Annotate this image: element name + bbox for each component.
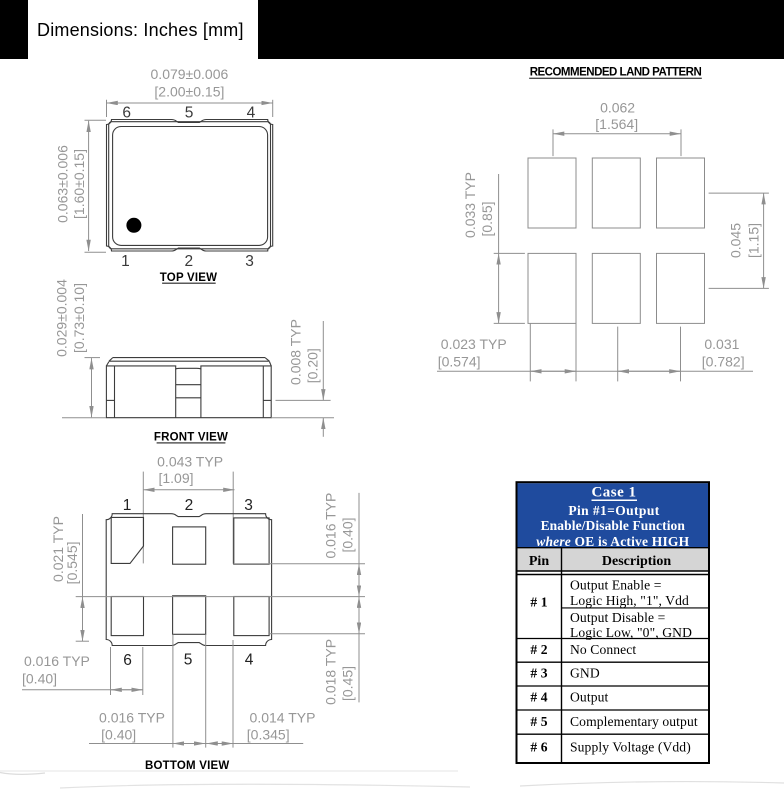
- svg-text:0.008 TYP: 0.008 TYP: [287, 319, 303, 385]
- svg-text:0.043 TYP: 0.043 TYP: [157, 454, 223, 470]
- svg-text:[0.73±0.10]: [0.73±0.10]: [71, 283, 87, 353]
- svg-text:Description: Description: [602, 554, 671, 569]
- svg-text:TOP VIEW: TOP VIEW: [160, 272, 217, 284]
- svg-text:# 1: # 1: [530, 595, 547, 610]
- svg-text:GND: GND: [570, 666, 600, 681]
- svg-text:[0.45]: [0.45]: [339, 666, 355, 701]
- svg-text:Complementary output: Complementary output: [570, 714, 698, 729]
- svg-text:0.016 TYP: 0.016 TYP: [24, 653, 90, 669]
- svg-text:[0.574]: [0.574]: [438, 354, 481, 370]
- svg-text:[0.545]: [0.545]: [64, 541, 80, 584]
- svg-text:# 6: # 6: [530, 740, 547, 755]
- svg-text:[1.564]: [1.564]: [595, 116, 638, 132]
- svg-text:2: 2: [185, 497, 194, 514]
- svg-text:Pin #1=Output: Pin #1=Output: [568, 503, 659, 518]
- svg-text:0.014 TYP: 0.014 TYP: [250, 710, 316, 726]
- svg-text:[0.20]: [0.20]: [304, 348, 320, 383]
- svg-text:3: 3: [244, 497, 253, 514]
- svg-text:Logic High, "1", Vdd: Logic High, "1", Vdd: [570, 593, 689, 608]
- svg-text:[0.85]: [0.85]: [479, 201, 495, 236]
- svg-text:0.016 TYP: 0.016 TYP: [99, 710, 165, 726]
- svg-text:# 3: # 3: [530, 666, 547, 681]
- svg-text:[2.00±0.15]: [2.00±0.15]: [154, 84, 224, 100]
- svg-text:0.079±0.006: 0.079±0.006: [151, 66, 229, 82]
- svg-text:[1.60±0.15]: [1.60±0.15]: [71, 149, 87, 219]
- svg-text:0.063±0.006: 0.063±0.006: [55, 145, 71, 223]
- svg-text:0.033 TYP: 0.033 TYP: [462, 172, 478, 238]
- svg-text:Output: Output: [570, 690, 608, 705]
- svg-text:5: 5: [185, 105, 194, 122]
- svg-text:FRONT VIEW: FRONT VIEW: [154, 432, 228, 444]
- svg-text:0.018 TYP: 0.018 TYP: [322, 639, 338, 705]
- svg-text:Logic Low, "0", GND: Logic Low, "0", GND: [570, 625, 692, 640]
- svg-text:# 2: # 2: [530, 642, 547, 657]
- svg-text:[0.782]: [0.782]: [702, 354, 745, 370]
- svg-text:4: 4: [245, 652, 254, 669]
- svg-text:where OE is Active HIGH: where OE is Active HIGH: [536, 534, 689, 549]
- svg-text:1: 1: [121, 253, 130, 270]
- svg-text:0.029±0.004: 0.029±0.004: [53, 279, 69, 357]
- svg-text:Supply Voltage (Vdd): Supply Voltage (Vdd): [570, 740, 691, 756]
- svg-text:[1.15]: [1.15]: [746, 223, 762, 258]
- svg-text:0.016 TYP: 0.016 TYP: [322, 493, 338, 559]
- svg-text:RECOMMENDED LAND PATTERN: RECOMMENDED LAND PATTERN: [530, 67, 702, 79]
- svg-text:2: 2: [184, 253, 193, 270]
- svg-text:0.023 TYP: 0.023 TYP: [441, 336, 507, 352]
- svg-text:[0.40]: [0.40]: [101, 727, 136, 743]
- svg-text:[0.345]: [0.345]: [247, 727, 290, 743]
- svg-text:[0.40]: [0.40]: [339, 517, 355, 552]
- svg-text:0.031: 0.031: [704, 336, 739, 352]
- svg-text:1: 1: [123, 497, 132, 514]
- svg-text:Dimensions: Inches [mm]: Dimensions: Inches [mm]: [37, 20, 244, 40]
- svg-text:# 5: # 5: [530, 714, 547, 729]
- svg-text:# 4: # 4: [530, 690, 547, 705]
- svg-text:Case 1: Case 1: [591, 485, 636, 501]
- svg-text:0.045: 0.045: [727, 223, 743, 258]
- svg-text:No Connect: No Connect: [570, 642, 636, 657]
- svg-text:[0.40]: [0.40]: [22, 671, 57, 687]
- svg-text:[1.09]: [1.09]: [158, 470, 193, 486]
- svg-text:Enable/Disable Function: Enable/Disable Function: [541, 518, 686, 533]
- svg-text:3: 3: [245, 253, 254, 270]
- svg-text:Output Disable =: Output Disable =: [570, 610, 665, 625]
- svg-text:0.062: 0.062: [600, 100, 635, 116]
- svg-text:BOTTOM VIEW: BOTTOM VIEW: [145, 760, 229, 772]
- svg-text:Pin: Pin: [529, 554, 549, 569]
- svg-text:Output Enable =: Output Enable =: [570, 578, 661, 593]
- svg-text:5: 5: [184, 652, 193, 669]
- svg-text:6: 6: [123, 652, 132, 669]
